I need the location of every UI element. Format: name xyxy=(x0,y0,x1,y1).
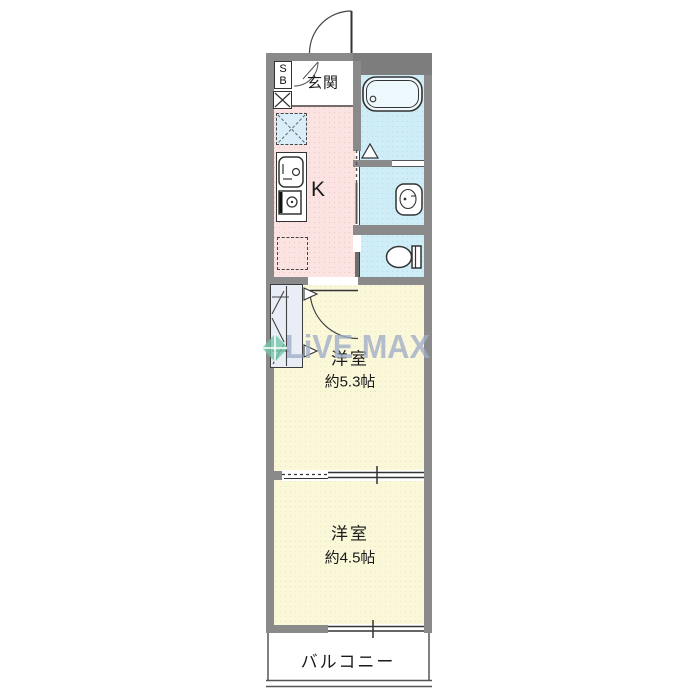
bathtub-icon xyxy=(363,77,422,111)
toilet-icon xyxy=(387,246,422,268)
floorplan-canvas: S B xyxy=(0,0,700,700)
balcony-label: バルコニー xyxy=(301,648,396,673)
washbasin-icon xyxy=(396,184,422,215)
room1-size-label: 約5.3帖 xyxy=(325,371,376,392)
room2-size-label: 約4.5帖 xyxy=(325,547,376,568)
meter-box-x-icon xyxy=(275,93,290,107)
refrigerator-x-icon xyxy=(278,115,305,143)
entrance-label: 玄関 xyxy=(307,72,339,93)
bath-door-icon xyxy=(362,144,378,158)
room2-name-label: 洋室 xyxy=(331,520,369,545)
room1-door-icon xyxy=(310,291,358,339)
room-partition-sliding-door xyxy=(282,466,424,484)
stove-icon xyxy=(279,191,301,214)
kitchen-sink-icon xyxy=(279,157,303,187)
balcony-window-icon xyxy=(328,620,424,638)
room1-name-label: 洋室 xyxy=(331,345,369,370)
kitchen-label: K xyxy=(311,178,325,202)
